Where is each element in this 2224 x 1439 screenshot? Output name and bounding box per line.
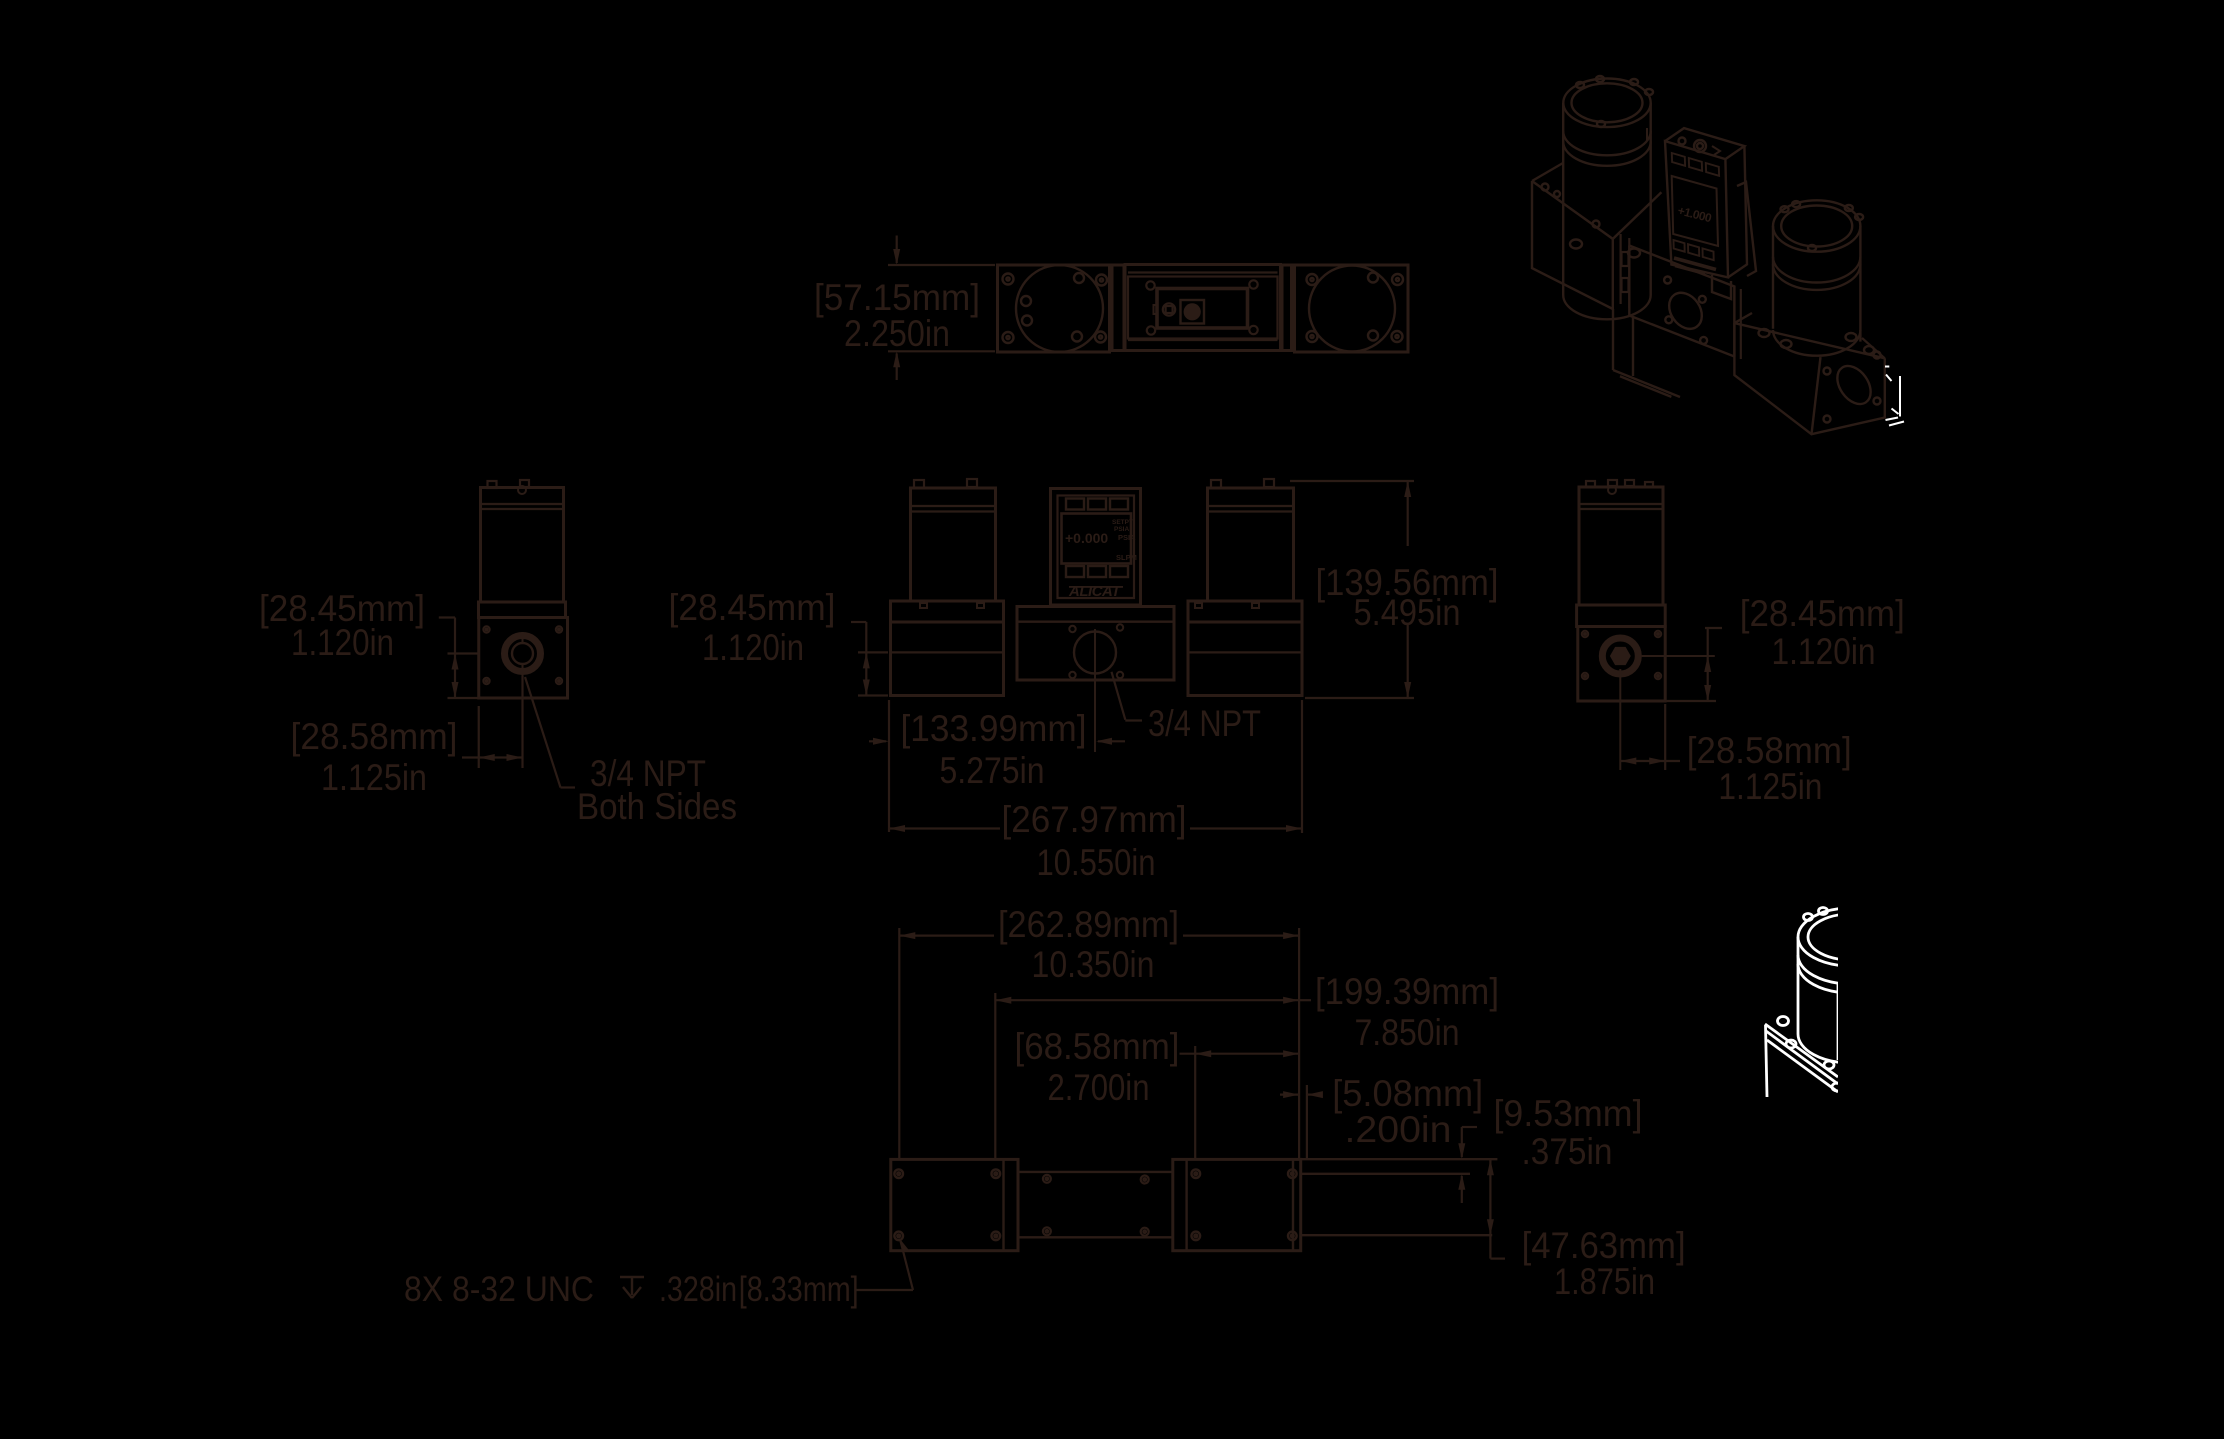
svg-text:5.275in: 5.275in [940,750,1045,791]
svg-text:[9.53mm]: [9.53mm] [1494,1093,1643,1134]
svg-text:[267.97mm]: [267.97mm] [1002,799,1187,840]
svg-text:[133.99mm]: [133.99mm] [901,708,1087,749]
svg-text:7.850in: 7.850in [1355,1012,1460,1053]
svg-text:[5.08mm]: [5.08mm] [1332,1073,1483,1114]
svg-text:[68.58mm]: [68.58mm] [1015,1026,1180,1067]
svg-text:3/4 NPT: 3/4 NPT [1148,703,1261,744]
svg-text:[47.63mm]: [47.63mm] [1522,1225,1686,1266]
svg-text:.328in: .328in [659,1270,737,1309]
svg-text:1.875in: 1.875in [1554,1261,1655,1302]
svg-text:[199.39mm]: [199.39mm] [1315,971,1499,1012]
svg-text:[28.58mm]: [28.58mm] [1687,730,1852,771]
svg-text:1.120in: 1.120in [291,622,394,663]
svg-text:[262.89mm]: [262.89mm] [998,904,1179,945]
svg-text:+0.000: +0.000 [1065,530,1108,546]
svg-text:SETPT: SETPT [1112,519,1133,526]
svg-text:ALICAT: ALICAT [1068,583,1122,600]
svg-text:[28.45mm]: [28.45mm] [1740,593,1905,634]
svg-text:.200in: .200in [1345,1109,1452,1150]
svg-text:2.250in: 2.250in [844,313,950,354]
svg-text:5.495in: 5.495in [1354,592,1461,633]
svg-text:[8.33mm]: [8.33mm] [739,1270,859,1309]
svg-text:10.550in: 10.550in [1037,842,1156,883]
svg-text:[57.15mm]: [57.15mm] [814,277,980,318]
svg-text:[28.45mm]: [28.45mm] [669,587,836,628]
svg-text:1.120in: 1.120in [1772,631,1876,672]
svg-text:8X 8-32 UNC: 8X 8-32 UNC [404,1270,594,1309]
svg-text:10.350in: 10.350in [1032,944,1155,985]
svg-text:PSIA: PSIA [1118,533,1136,542]
svg-text:.375in: .375in [1522,1131,1613,1172]
svg-text:1.125in: 1.125in [1718,766,1822,807]
svg-text:1.120in: 1.120in [702,627,804,668]
svg-text:1.125in: 1.125in [321,757,427,798]
svg-text:PSIA: PSIA [1114,526,1129,533]
svg-text:[28.58mm]: [28.58mm] [291,716,458,757]
svg-text:2.700in: 2.700in [1048,1067,1150,1108]
svg-text:Both Sides: Both Sides [577,786,737,827]
svg-text:SLPM: SLPM [1116,553,1137,562]
